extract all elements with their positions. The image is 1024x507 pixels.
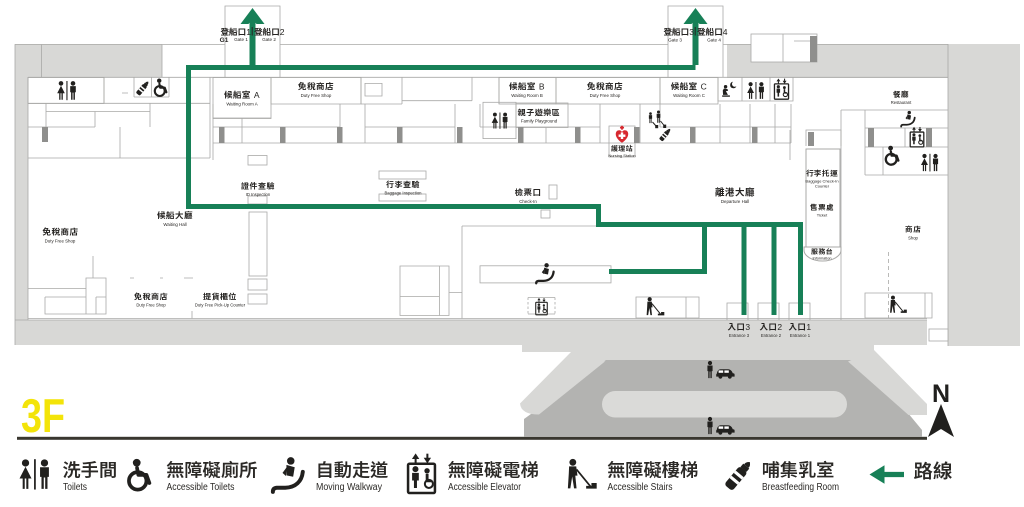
svg-text:3F: 3F: [21, 389, 65, 442]
svg-text:Waiting Room A: Waiting Room A: [226, 102, 257, 107]
svg-text:Accessible Stairs: Accessible Stairs: [608, 482, 673, 493]
svg-text:Duty Free Pick-Up Counter: Duty Free Pick-Up Counter: [195, 303, 246, 308]
svg-text:Accessible Elevator: Accessible Elevator: [448, 482, 522, 493]
svg-text:免稅商店: 免稅商店: [42, 226, 78, 238]
svg-text:免稅商店: 免稅商店: [134, 292, 168, 303]
svg-text:Breastfeeding Room: Breastfeeding Room: [762, 482, 839, 493]
svg-text:Family Playground: Family Playground: [521, 119, 558, 124]
svg-text:Information: Information: [813, 257, 832, 261]
svg-text:無障礙電梯: 無障礙電梯: [448, 457, 539, 483]
svg-text:無障礙廁所: 無障礙廁所: [166, 457, 257, 483]
svg-text:入口1: 入口1: [788, 321, 811, 333]
svg-text:Toilets: Toilets: [63, 482, 87, 493]
svg-text:Departure Hall: Departure Hall: [721, 199, 749, 204]
svg-text:免稅商店: 免稅商店: [298, 81, 334, 93]
svg-text:候船室 A: 候船室 A: [224, 89, 260, 101]
svg-text:Entrance 3: Entrance 3: [729, 333, 750, 338]
svg-text:入口3: 入口3: [727, 321, 750, 333]
svg-text:離港大廳: 離港大廳: [715, 185, 755, 199]
svg-text:N: N: [932, 380, 950, 408]
svg-text:Duty Free Shop: Duty Free Shop: [136, 303, 166, 308]
svg-text:免稅商店: 免稅商店: [587, 81, 623, 93]
svg-text:餐廳: 餐廳: [892, 89, 909, 100]
svg-text:哺集乳室: 哺集乳室: [762, 457, 835, 483]
svg-text:Counter: Counter: [815, 184, 830, 189]
svg-text:Shop: Shop: [908, 236, 918, 241]
svg-text:證件查驗: 證件查驗: [241, 181, 275, 192]
svg-text:Duty Free Shop: Duty Free Shop: [45, 239, 76, 244]
svg-text:登船口4: 登船口4: [697, 26, 728, 38]
svg-text:Waiting Room C: Waiting Room C: [673, 93, 705, 98]
svg-text:候船大廳: 候船大廳: [157, 210, 193, 222]
svg-text:Duty Free Shop: Duty Free Shop: [301, 93, 332, 98]
svg-text:Accessible Toilets: Accessible Toilets: [167, 482, 235, 493]
svg-text:檢票口: 檢票口: [514, 187, 541, 199]
svg-text:Restaurant: Restaurant: [891, 100, 912, 105]
svg-text:ID Inspection: ID Inspection: [246, 192, 271, 197]
svg-text:Moving Walkway: Moving Walkway: [316, 482, 382, 493]
svg-text:候船室 C: 候船室 C: [671, 81, 708, 93]
svg-text:服務台: 服務台: [811, 246, 833, 256]
svg-text:Gate 4: Gate 4: [707, 38, 721, 43]
svg-text:Gate 1: Gate 1: [234, 37, 248, 42]
svg-text:自動走道: 自動走道: [316, 457, 389, 483]
svg-text:路線: 路線: [914, 455, 953, 484]
svg-text:親子遊樂區: 親子遊樂區: [518, 108, 561, 119]
svg-text:Entrance 1: Entrance 1: [790, 333, 811, 338]
svg-text:商店: 商店: [905, 224, 921, 235]
svg-text:登船口3: 登船口3: [663, 26, 694, 38]
svg-text:Entrance 2: Entrance 2: [761, 333, 782, 338]
svg-text:無障礙樓梯: 無障礙樓梯: [607, 457, 698, 483]
svg-text:洗手間: 洗手間: [63, 457, 118, 483]
svg-text:Baggage Inspection: Baggage Inspection: [384, 191, 422, 196]
svg-text:Nursing Station: Nursing Station: [608, 153, 635, 158]
svg-text:Ticket: Ticket: [817, 213, 828, 218]
svg-text:提貨櫃位: 提貨櫃位: [203, 292, 237, 303]
svg-text:入口2: 入口2: [759, 321, 782, 333]
svg-text:G1: G1: [220, 37, 229, 44]
svg-text:Duty Free Shop: Duty Free Shop: [590, 93, 621, 98]
svg-text:Gate 2: Gate 2: [262, 37, 276, 42]
svg-text:售票處: 售票處: [809, 202, 834, 213]
svg-text:候船室 B: 候船室 B: [509, 81, 545, 93]
svg-text:Check-In: Check-In: [519, 199, 537, 204]
svg-text:行李查驗: 行李查驗: [385, 180, 420, 191]
svg-text:Waiting Room B: Waiting Room B: [511, 93, 543, 98]
svg-text:Waiting Hall: Waiting Hall: [163, 222, 186, 227]
svg-text:Gate 3: Gate 3: [668, 38, 682, 43]
svg-text:行李托運: 行李托運: [805, 168, 838, 179]
